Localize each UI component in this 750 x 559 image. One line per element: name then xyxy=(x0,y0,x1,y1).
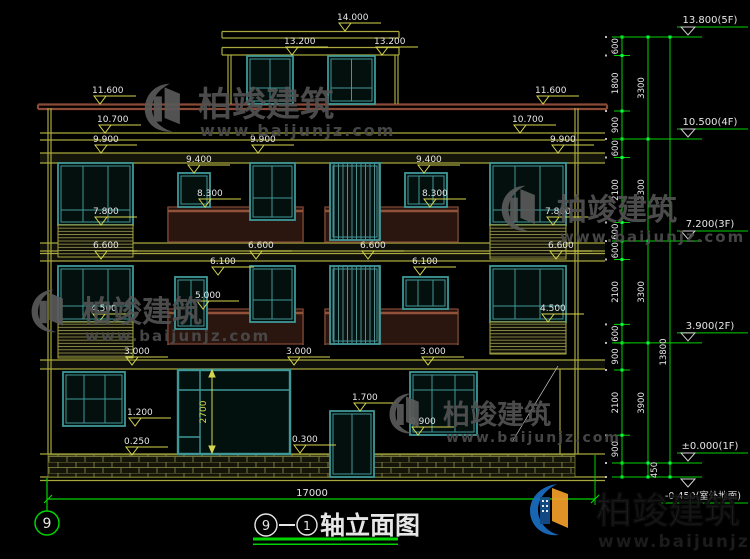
watermark-brand: 柏竣建筑 xyxy=(596,491,740,532)
title-axis-right: 1 xyxy=(303,519,311,533)
dim-label: 9.900 xyxy=(550,135,576,145)
chain-node xyxy=(621,110,624,113)
window-1f-left xyxy=(63,372,125,426)
total-dim-label: 17000 xyxy=(296,488,328,499)
drawing-title: 9 1 轴立面图 xyxy=(253,511,420,545)
dim-label: 13.200 xyxy=(374,37,406,47)
dim-flag xyxy=(212,267,254,275)
level-flags: 13.800(5F)10.500(4F)7.200(3F)3.900(2F)±0… xyxy=(660,15,748,503)
chain-group-label: 3300 xyxy=(637,77,647,99)
small-window-2f-right xyxy=(403,277,448,309)
dim-flag xyxy=(94,96,136,104)
dim-flag xyxy=(552,145,594,153)
chain-node xyxy=(669,476,672,479)
dim-label: 0.300 xyxy=(292,435,318,445)
watermark-logo-colored: 柏竣建筑 www.baijunjz.com xyxy=(530,484,750,552)
axis-bubble: 9 xyxy=(35,478,59,535)
chain-node xyxy=(647,341,650,344)
dim-label: 14.000 xyxy=(337,13,369,23)
level-label: 13.800(5F) xyxy=(683,15,738,26)
cad-elevation-drawing: 14.00013.20013.20011.60011.60010.70010.7… xyxy=(0,0,750,559)
level-flag xyxy=(681,479,695,487)
witness-dot xyxy=(605,323,607,325)
chain-total-label: 13800 xyxy=(659,338,669,365)
dim-label: 3.000 xyxy=(124,347,150,357)
dim-flag xyxy=(376,47,418,55)
dim-label: 3.000 xyxy=(420,347,446,357)
dim-label: 1.700 xyxy=(352,393,378,403)
level-flag xyxy=(681,333,695,341)
chain-segment-label: 900 xyxy=(611,117,621,133)
witness-dot xyxy=(605,110,607,112)
chain-node xyxy=(647,138,650,141)
witness-dot xyxy=(605,55,607,57)
dim-label: 6.600 xyxy=(360,241,386,251)
elevation-svg: 14.00013.20013.20011.60011.60010.70010.7… xyxy=(0,0,750,559)
chain-node xyxy=(647,36,650,39)
watermark-brand: 柏竣建筑 xyxy=(443,399,551,431)
chain-segment-label: 2100 xyxy=(611,281,621,303)
level-flag xyxy=(681,453,695,461)
witness-dot xyxy=(605,476,607,478)
dim-label: 9.900 xyxy=(93,135,119,145)
stair-window-3f xyxy=(330,163,380,240)
dim-flag xyxy=(286,47,328,55)
chain-footing-label: 450 xyxy=(650,462,660,478)
dim-label: 3.000 xyxy=(286,347,312,357)
louver-box-2f-right xyxy=(490,322,566,354)
watermark-brand: 柏竣建筑 xyxy=(557,193,677,228)
dim-flag xyxy=(129,418,171,426)
watermark-url: www.baijunjz.com xyxy=(85,327,270,345)
dim-flag xyxy=(537,96,579,104)
watermark-brand: 柏竣建筑 xyxy=(198,85,334,125)
watermark-url: www.baijunjz.com xyxy=(200,121,395,140)
chain-segment-label: 600 xyxy=(611,140,621,156)
tall-window-3f xyxy=(250,163,295,220)
watermark-url: www.baijunjz.com xyxy=(598,532,750,552)
dim-label: 6.100 xyxy=(412,257,438,267)
right-dimension-chain: 6001800900600210060060021006009002100900… xyxy=(605,36,702,479)
dim-flag xyxy=(418,165,460,173)
dim-flag xyxy=(188,165,230,173)
dim-label: 0.250 xyxy=(124,437,150,447)
witness-dot xyxy=(605,138,607,140)
chain-segment-label: 900 xyxy=(611,348,621,364)
dim-label: 9.400 xyxy=(416,155,442,165)
balcony-rails xyxy=(168,207,458,344)
level-label: 10.500(4F) xyxy=(683,117,738,128)
chain-node xyxy=(669,462,672,465)
dim-label: 9.400 xyxy=(186,155,212,165)
level-label: 3.900(2F) xyxy=(686,321,735,332)
chain-group-label: 3900 xyxy=(637,392,647,414)
dim-label: 11.600 xyxy=(535,86,567,96)
watermark-brand: 柏竣建筑 xyxy=(82,295,202,330)
witness-dot xyxy=(605,157,607,159)
title-text: 轴立面图 xyxy=(320,511,420,540)
penthouse-window-right xyxy=(328,56,375,104)
chain-segment-label: 600 xyxy=(611,38,621,54)
dim-label: 10.700 xyxy=(512,115,544,125)
chain-node xyxy=(621,323,624,326)
dim-label: 11.600 xyxy=(92,86,124,96)
level-flag xyxy=(681,27,695,35)
dim-2700-label: 2700 xyxy=(199,400,209,423)
witness-dot xyxy=(605,369,607,371)
dim-label: 8.300 xyxy=(197,189,223,199)
chain-group-label: 3300 xyxy=(637,281,647,303)
chain-node xyxy=(621,369,624,372)
dim-flag xyxy=(252,145,294,153)
stair-window-2f xyxy=(330,266,380,344)
witness-dot xyxy=(605,462,607,464)
level-flag xyxy=(681,129,695,137)
watermark-url: www.baijunjz.com xyxy=(560,228,745,246)
level-label: ±0.000(1F) xyxy=(682,441,739,452)
witness-dot xyxy=(605,259,607,261)
plinth-brick xyxy=(48,455,575,477)
storefront-1f xyxy=(178,370,290,454)
dim-label: 1.200 xyxy=(127,408,153,418)
chain-segment-label: 2100 xyxy=(611,392,621,414)
dim-flag xyxy=(99,125,141,133)
chain-node xyxy=(669,36,672,39)
dim-flag xyxy=(354,403,396,411)
dim-label: 8.300 xyxy=(422,189,448,199)
tall-window-2f xyxy=(250,266,295,322)
title-axis-left: 9 xyxy=(262,519,270,534)
chain-segment-label: 1800 xyxy=(611,72,621,94)
dim-label: 13.200 xyxy=(284,37,316,47)
dim-label: 4.500 xyxy=(540,304,566,314)
dim-flag xyxy=(339,23,381,31)
dim-label: 10.700 xyxy=(97,115,129,125)
dim-flag xyxy=(414,267,456,275)
dim-flag xyxy=(95,145,137,153)
dim-label: 6.600 xyxy=(248,241,274,251)
dim-label: 6.600 xyxy=(93,241,119,251)
witness-dot xyxy=(605,36,607,38)
axis-bubble-label: 9 xyxy=(43,516,52,532)
chain-segment-label: 600 xyxy=(611,326,621,342)
dim-label: 6.100 xyxy=(210,257,236,267)
watermark-url: www.baijunjz.com xyxy=(446,430,621,446)
dim-flag xyxy=(514,125,556,133)
dim-label: 7.800 xyxy=(93,207,119,217)
entry-door-1f xyxy=(330,411,374,477)
witness-dot xyxy=(605,342,607,344)
